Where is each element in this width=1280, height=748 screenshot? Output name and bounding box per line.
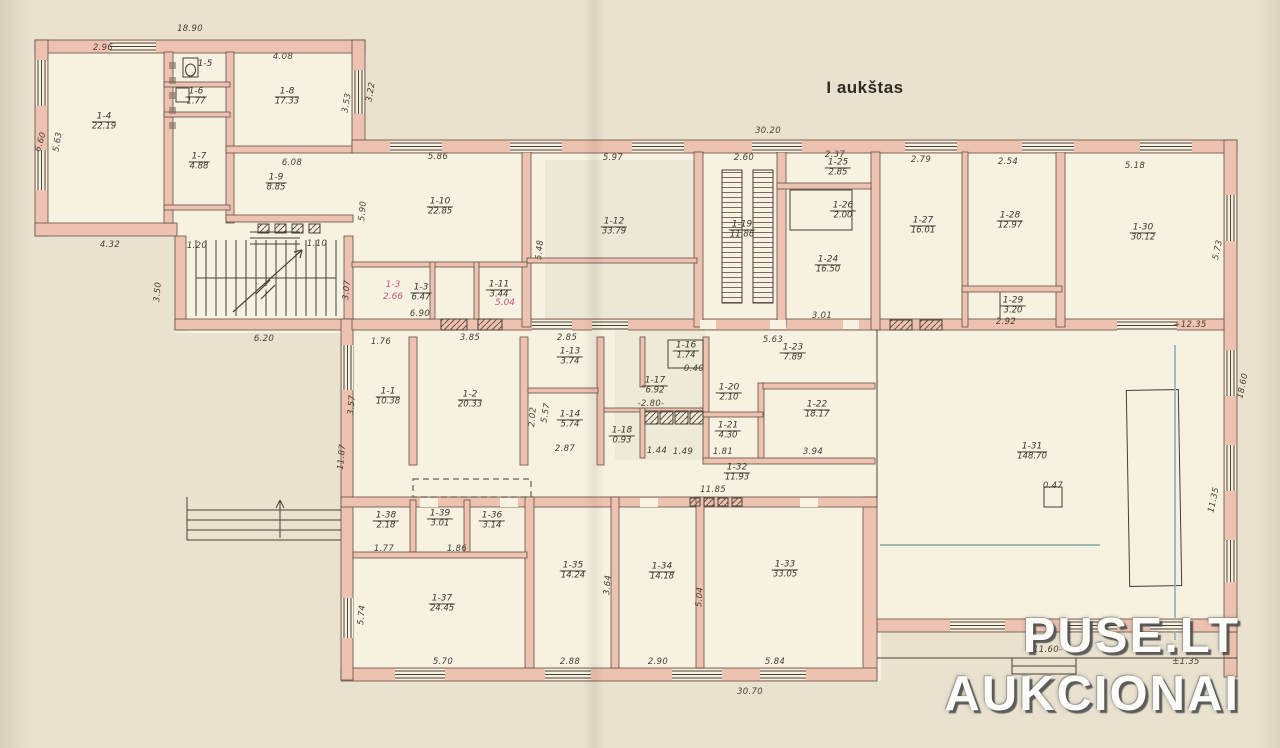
dimension-label: 11.87 [336, 444, 348, 471]
room-label: 1-110.38 [376, 386, 400, 407]
room-area: 3.14 [479, 522, 505, 532]
room-area: 3.74 [557, 358, 583, 368]
dimension-label: 3.22 [364, 81, 377, 103]
room-label: 1-2416.50 [815, 254, 841, 275]
room-label: 1-3333.05 [772, 559, 798, 580]
dimension-label: 5.63 [763, 335, 783, 345]
room-area: 33.05 [772, 571, 798, 581]
room-label: 1-202.10 [716, 382, 742, 403]
room-area: 11.86 [729, 231, 755, 241]
room-area: 30.12 [1130, 234, 1156, 244]
room-area: 4.88 [189, 163, 210, 173]
room-label: 1-2812.97 [997, 210, 1023, 231]
dimension-label: 1.44 [647, 446, 667, 456]
room-label: 1-422.19 [92, 111, 116, 132]
room-label: 1-220.33 [458, 389, 482, 410]
room-area: 17.33 [275, 98, 299, 108]
dimension-label: 5.57 [539, 402, 552, 424]
room-area: 7.89 [780, 354, 806, 364]
red-pencil-note: 5.04 [495, 298, 515, 308]
dimension-label: 1.49 [673, 447, 693, 457]
dimension-label: 5.86 [428, 152, 448, 162]
dimension-label: 5.84 [765, 657, 785, 667]
dimension-label: 2.54 [998, 157, 1018, 167]
dimension-label: 2.60 [734, 153, 754, 163]
room-label: 1-5 [195, 59, 216, 69]
room-area: 18.17 [804, 411, 830, 421]
room-area: 2.10 [716, 394, 742, 404]
room-label: 1-817.33 [275, 86, 299, 107]
room-id: 1-5 [195, 59, 216, 69]
room-label: 1-252.85 [825, 157, 851, 178]
dimension-label: 30.70 [737, 687, 763, 697]
room-area: 22.19 [92, 123, 116, 133]
room-label: 1-36.47 [411, 282, 432, 303]
dimension-label: +12.35 [1173, 320, 1206, 330]
room-label: 1-145.74 [557, 409, 583, 430]
dimension-label: 1.77 [374, 544, 394, 554]
room-label: 1-74.88 [189, 151, 210, 172]
room-area: 22.85 [427, 208, 453, 218]
room-area: 2.18 [373, 522, 399, 532]
dimension-label: 0.40 [684, 364, 704, 374]
room-area: 20.33 [458, 401, 482, 411]
dimension-label: 2.87 [555, 444, 575, 454]
dimension-label: 1.81 [713, 447, 733, 457]
room-area: 3.20 [1000, 307, 1026, 317]
room-area: 14.24 [560, 572, 586, 582]
room-label: 1-133.74 [557, 346, 583, 367]
room-area: 12.97 [997, 222, 1023, 232]
dimension-label: 5.48 [534, 240, 546, 261]
dimension-label: 3.85 [460, 333, 480, 343]
dimension-label: 2.37 [825, 150, 845, 160]
dimension-label: 3.64 [602, 575, 614, 596]
dimension-label: 2.92 [996, 317, 1016, 327]
dimension-label: 2.85 [557, 333, 577, 343]
room-area: 5.74 [557, 421, 583, 431]
dimension-label: 2.96 [93, 43, 113, 53]
room-label: 1-363.14 [479, 510, 505, 531]
dimension-label: 5.90 [357, 201, 369, 222]
dimension-label: 2.88 [560, 657, 580, 667]
room-label: 1-382.18 [373, 510, 399, 531]
dimension-label: 5.74 [356, 605, 368, 626]
room-area: 4.30 [715, 432, 741, 442]
room-label: 1-1911.86 [729, 219, 755, 240]
dimension-label: 11.35 [1206, 486, 1221, 513]
dimension-label: 5.63 [51, 131, 64, 153]
room-label: 1-61.77 [186, 86, 207, 107]
dimension-label: 6.90 [410, 309, 430, 319]
room-area: 11.93 [724, 474, 750, 484]
room-area: 16.01 [910, 227, 936, 237]
room-area: 6.47 [411, 294, 432, 304]
room-label: 1-3211.93 [724, 462, 750, 483]
room-area: 8.85 [266, 184, 287, 194]
room-label: 1-1022.85 [427, 196, 453, 217]
dimension-label: 11.85 [700, 485, 726, 495]
room-area: 1.74 [673, 352, 699, 362]
room-area: 148.70 [1017, 453, 1047, 463]
room-label: 1-393.01 [427, 508, 453, 529]
room-label: 1-180.93 [609, 425, 635, 446]
dimension-label: 18.60 [1235, 372, 1250, 399]
dimension-label: 18.90 [177, 24, 203, 34]
room-label: 1-176.92 [642, 375, 668, 396]
room-area: 2.00 [830, 212, 856, 222]
room-area: 10.38 [376, 398, 400, 408]
red-pencil-note: 1-3 [386, 280, 401, 290]
dimension-label: 6.60 [33, 131, 49, 153]
dimension-label: 2.79 [911, 155, 931, 165]
dimension-label: 5.70 [433, 657, 453, 667]
dimension-label: 30.20 [755, 126, 781, 136]
room-label: 1-237.89 [780, 342, 806, 363]
room-area: 1.77 [186, 98, 207, 108]
dimension-label: 5.97 [603, 153, 623, 163]
room-label: 1-3724.45 [429, 593, 455, 614]
room-label: 1-161.74 [673, 340, 699, 361]
room-area: 2.85 [825, 169, 851, 179]
room-label: 1-2716.01 [910, 215, 936, 236]
room-label: 1-3414.18 [649, 561, 675, 582]
dimension-label: 3.50 [152, 282, 164, 303]
red-pencil-note: 2.66 [383, 292, 403, 302]
dimension-label: 6.20 [254, 334, 274, 344]
dimension-label: 1.20 [187, 241, 207, 251]
room-area: 3.01 [427, 520, 453, 530]
dimension-label: 5.04 [694, 587, 706, 608]
room-area: 33.79 [601, 228, 627, 238]
dimension-label: 5.73 [1211, 239, 1225, 261]
dimension-label: 1.10 [307, 239, 327, 249]
room-area: 14.18 [649, 573, 675, 583]
dimension-label: 3.53 [340, 92, 353, 114]
room-area: 24.45 [429, 605, 455, 615]
room-label: 1-1233.79 [601, 216, 627, 237]
dimension-label: 6.08 [282, 158, 302, 168]
dimension-label: 3.94 [803, 447, 823, 457]
dimension-label: 5.18 [1125, 161, 1145, 171]
dimension-label: 3.57 [346, 395, 358, 416]
floor-plan-scan: I aukštas 1-422.191-51-61.771-74.881-817… [0, 0, 1280, 748]
room-label: 1-214.30 [715, 420, 741, 441]
room-label: 1-98.85 [266, 172, 287, 193]
dimension-label: 4.32 [100, 240, 120, 250]
dimension-label: 2.02 [527, 407, 539, 428]
dimension-label: -2.80- [638, 399, 665, 409]
room-label: 1-2218.17 [804, 399, 830, 420]
watermark-line2: AUKCIONAI [944, 670, 1240, 719]
dimension-label: 4.08 [273, 52, 293, 62]
dimension-label: 2.90 [648, 657, 668, 667]
room-label: 1-31148.70 [1017, 441, 1047, 462]
room-label: 1-3514.24 [560, 560, 586, 581]
room-label: 1-262.00 [830, 200, 856, 221]
room-label: 1-3030.12 [1130, 222, 1156, 243]
dimension-label: 3.01 [812, 311, 832, 321]
room-label: 1-293.20 [1000, 295, 1026, 316]
dimension-label: 3.07 [341, 280, 353, 301]
room-area: 0.93 [609, 437, 635, 447]
dimension-label: 0.47 [1043, 481, 1063, 491]
room-area: 6.92 [642, 387, 668, 397]
room-area: 16.50 [815, 266, 841, 276]
watermark-line1: PUSE.LT [1023, 612, 1240, 661]
dimension-label: 1.86 [447, 544, 467, 554]
dimension-label: 1.76 [371, 337, 391, 347]
